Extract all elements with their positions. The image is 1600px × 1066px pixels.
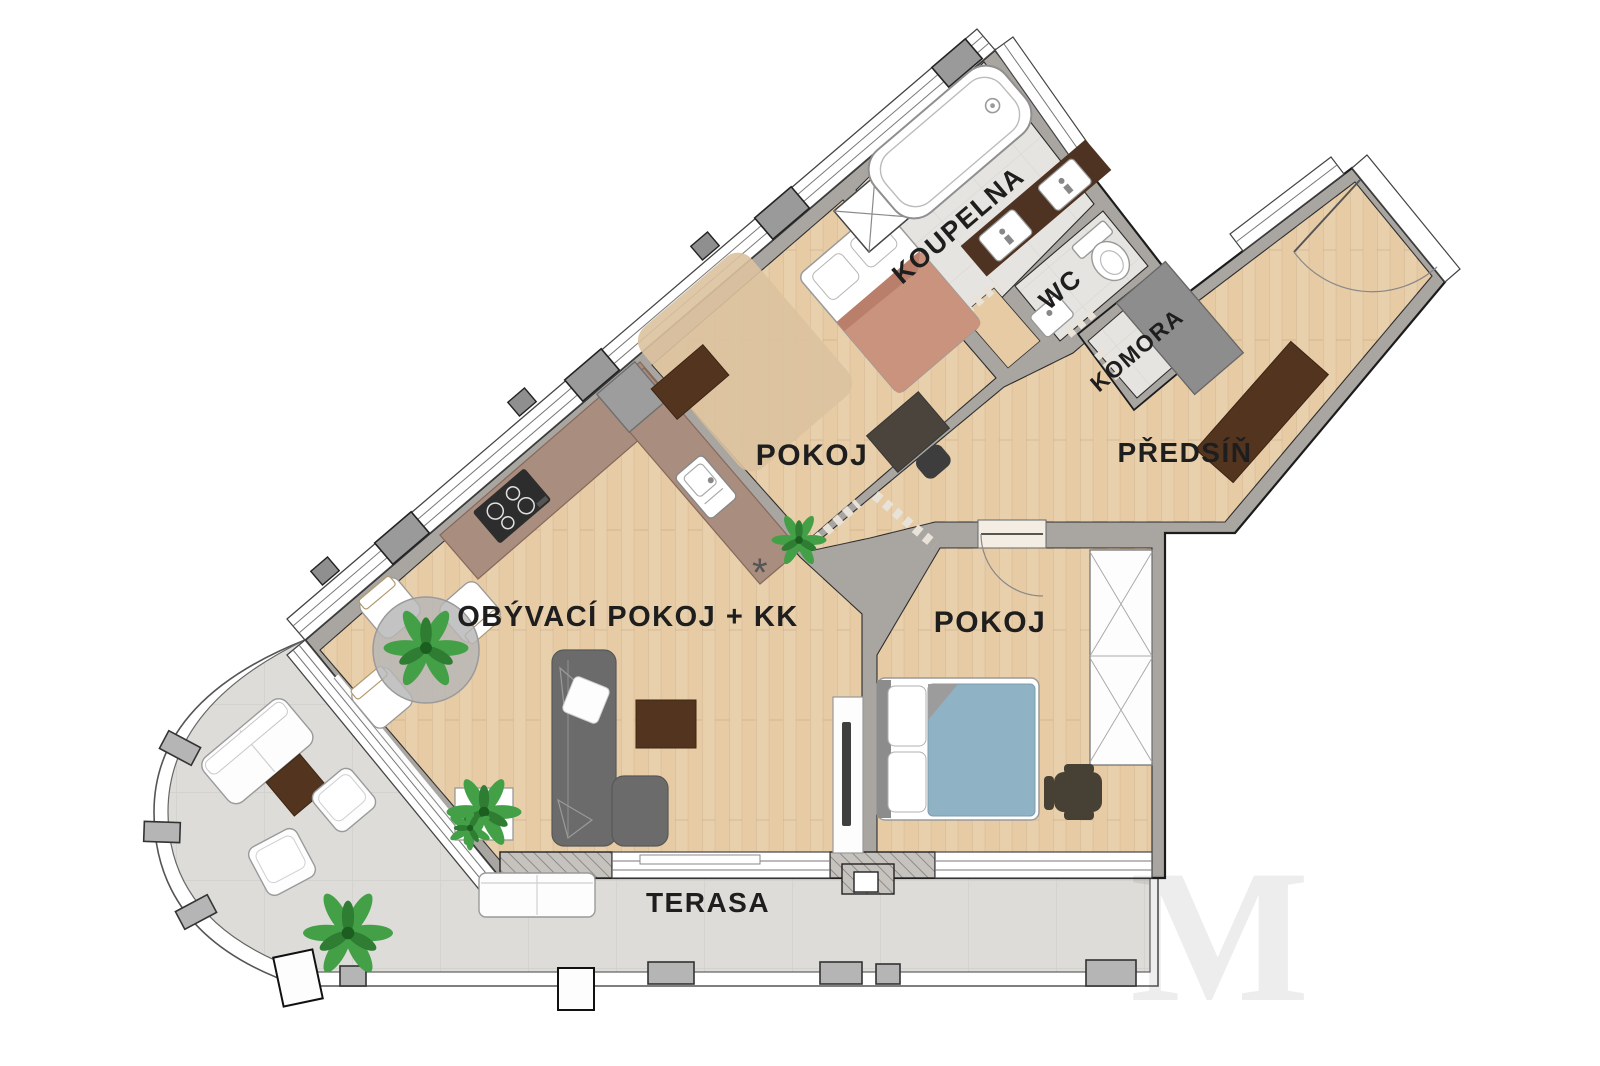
vent-symbol: * <box>752 551 768 595</box>
watermark: M <box>1130 832 1309 1042</box>
living-terrace-window <box>612 852 830 878</box>
bed <box>877 678 1039 820</box>
pillow <box>888 752 926 812</box>
pokoj2-window <box>935 852 1152 878</box>
wardrobe <box>1090 550 1152 765</box>
floor-plan-page: * <box>0 0 1600 1066</box>
terrace-bench <box>479 873 595 917</box>
bed-mattress <box>928 684 1035 816</box>
floor-plan-svg: * <box>0 0 1600 1066</box>
tv-cabinet <box>833 697 863 853</box>
coffee-table <box>636 700 696 748</box>
pillow <box>888 686 926 746</box>
label-obyvaci: OBÝVACÍ POKOJ + KK <box>457 599 799 633</box>
tv <box>842 722 851 826</box>
label-pokoj1: POKOJ <box>756 439 869 472</box>
label-pokoj2: POKOJ <box>934 606 1047 639</box>
label-predsin: PŘEDSÍŇ <box>1118 437 1253 468</box>
label-terasa: TERASA <box>646 887 770 918</box>
